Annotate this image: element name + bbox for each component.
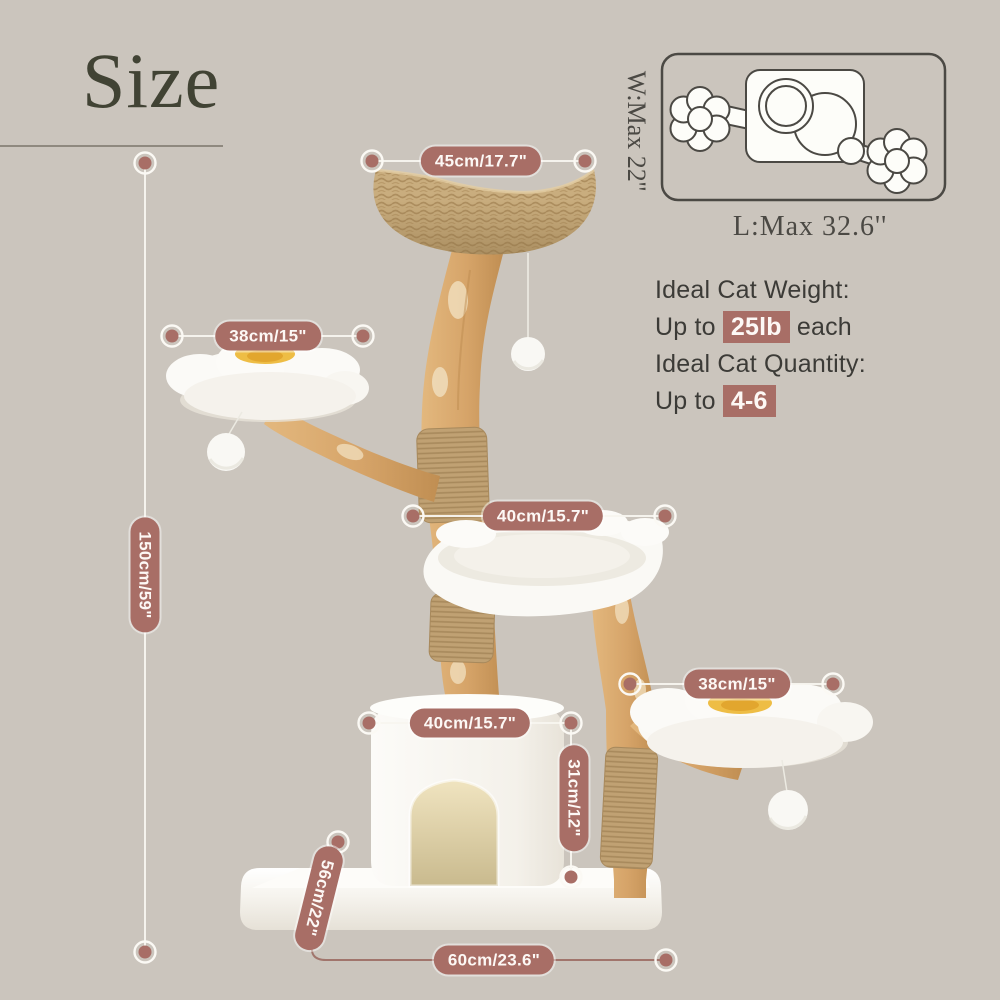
cat-weight-line: Up to 25lb each bbox=[655, 309, 985, 346]
cat-quantity-line: Up to 4-6 bbox=[655, 383, 985, 420]
cat-quantity-label: Ideal Cat Quantity: bbox=[655, 346, 985, 383]
footprint-length-label: L:Max 32.6'' bbox=[733, 211, 887, 243]
dim-label-hammock-width: 40cm/15.7" bbox=[483, 502, 603, 531]
dim-dot bbox=[659, 510, 672, 523]
footprint-flower-right bbox=[868, 129, 927, 193]
cat-quantity-value-chip: 4-6 bbox=[723, 385, 776, 417]
dim-label-top-perch-width: 45cm/17.7" bbox=[421, 147, 541, 176]
size-infographic: Size W:Max 22'' L:Max 32.6'' Ideal Cat W… bbox=[0, 0, 1000, 1000]
title-underline bbox=[0, 145, 223, 147]
page-title: Size bbox=[82, 36, 220, 126]
dim-label-total-height: 150cm/59" bbox=[131, 517, 160, 632]
dim-label-condo-width: 40cm/15.7" bbox=[410, 709, 530, 738]
dim-dot bbox=[827, 678, 840, 691]
jute-wrap-right bbox=[600, 747, 658, 870]
dim-dot bbox=[357, 330, 370, 343]
cat-weight-label: Ideal Cat Weight: bbox=[655, 272, 985, 309]
cat-info-block: Ideal Cat Weight: Up to 25lb each Ideal … bbox=[655, 272, 985, 420]
dim-dot bbox=[139, 946, 152, 959]
footprint-width-label: W:Max 22'' bbox=[621, 71, 651, 191]
dim-label-right-perch-width: 38cm/15" bbox=[684, 670, 790, 699]
dim-dot bbox=[166, 330, 179, 343]
dim-dot bbox=[366, 155, 379, 168]
dim-dot bbox=[660, 954, 673, 967]
pompom-left bbox=[207, 433, 245, 471]
condo-door bbox=[410, 780, 498, 886]
dim-dot bbox=[565, 871, 578, 884]
dim-dot bbox=[565, 717, 578, 730]
footprint-diagram bbox=[662, 54, 945, 200]
dim-dot bbox=[624, 678, 637, 691]
dim-label-left-perch-width: 38cm/15" bbox=[215, 322, 321, 351]
dim-label-condo-height: 31cm/12" bbox=[560, 745, 589, 851]
dim-dot bbox=[363, 717, 376, 730]
dim-dot bbox=[139, 157, 152, 170]
dim-dot bbox=[407, 510, 420, 523]
dim-dot bbox=[579, 155, 592, 168]
dim-label-base-width: 60cm/23.6" bbox=[434, 946, 554, 975]
footprint-flower-left bbox=[671, 87, 730, 151]
cat-weight-value-chip: 25lb bbox=[723, 311, 790, 343]
